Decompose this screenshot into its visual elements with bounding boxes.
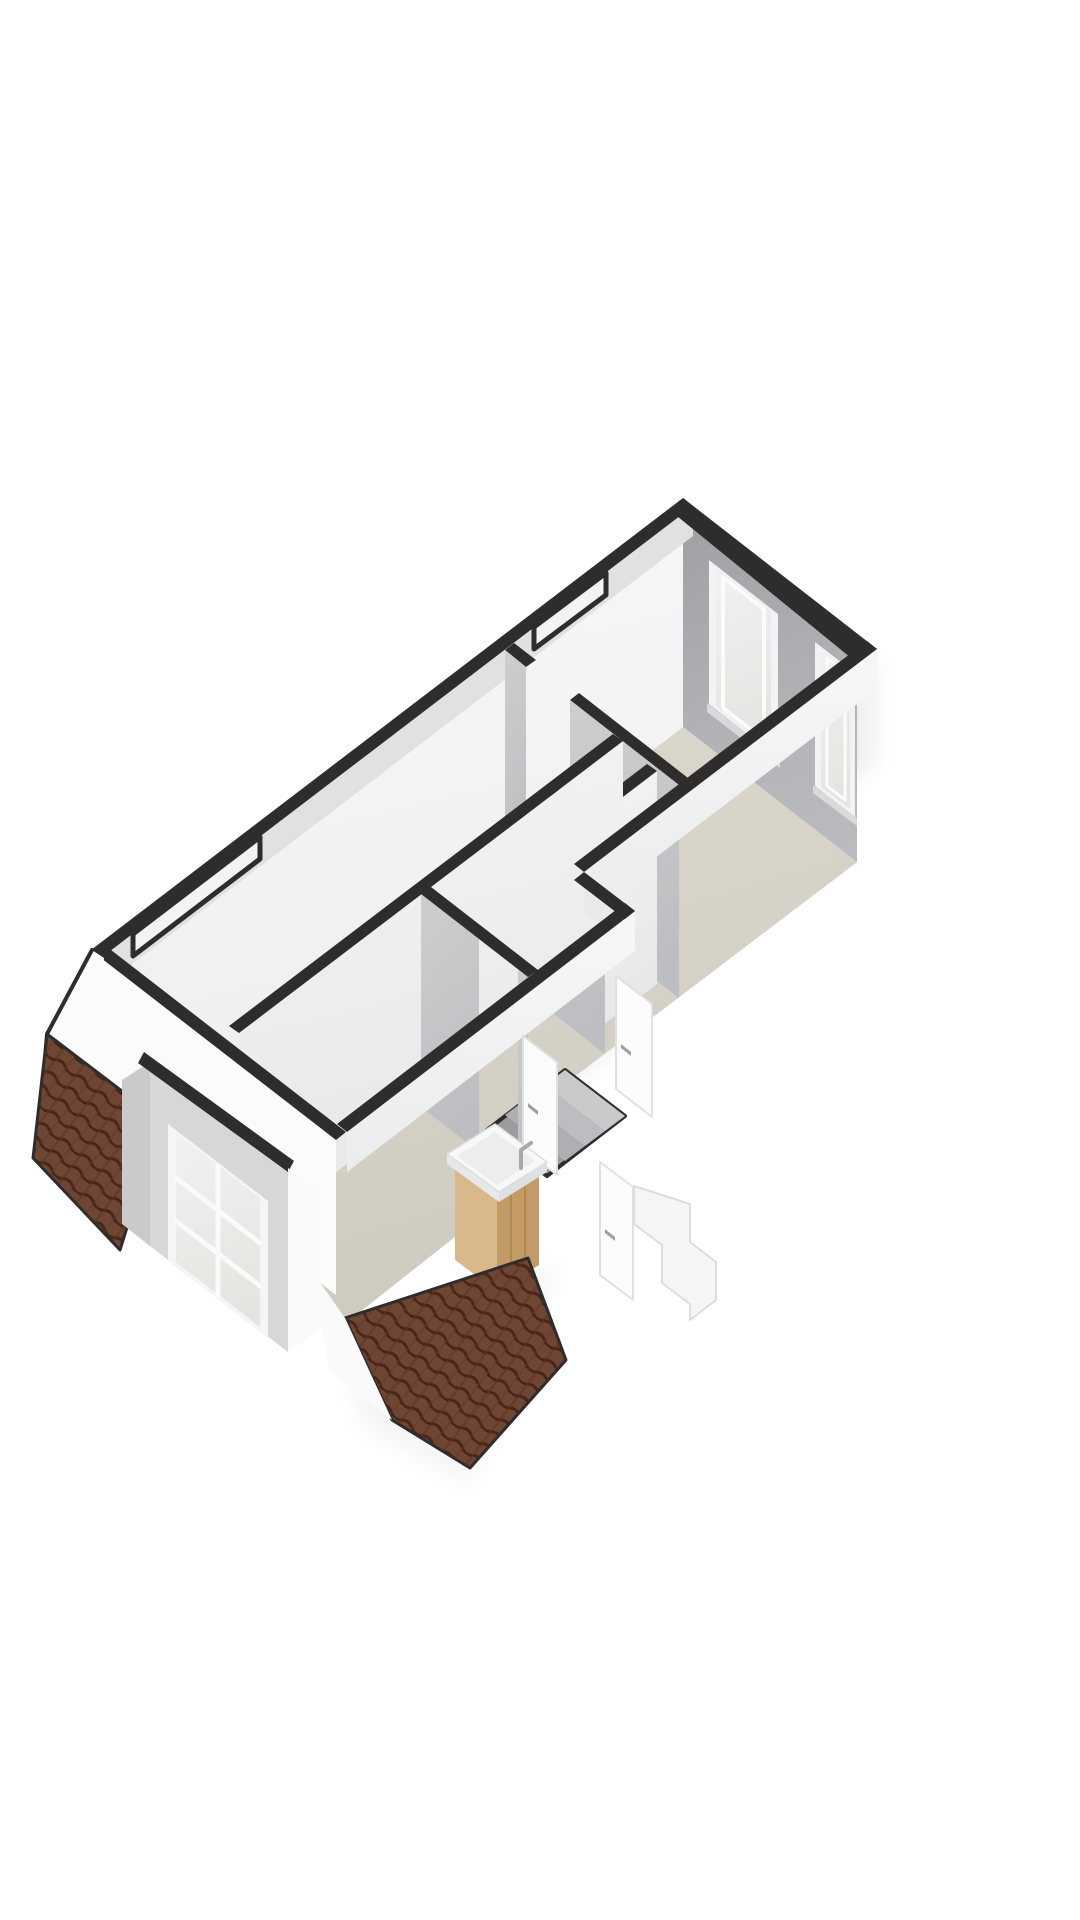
gable-sliver-right-of-dormer xyxy=(288,1168,320,1352)
floorplan-3d-render xyxy=(0,0,1080,1920)
scene-root xyxy=(33,498,877,1485)
floorplan-canvas xyxy=(0,0,1080,1920)
door-leaf-3 xyxy=(600,1162,633,1300)
dormer-cheek xyxy=(122,1062,150,1246)
exterior-staircase-silhouette xyxy=(634,1186,716,1320)
